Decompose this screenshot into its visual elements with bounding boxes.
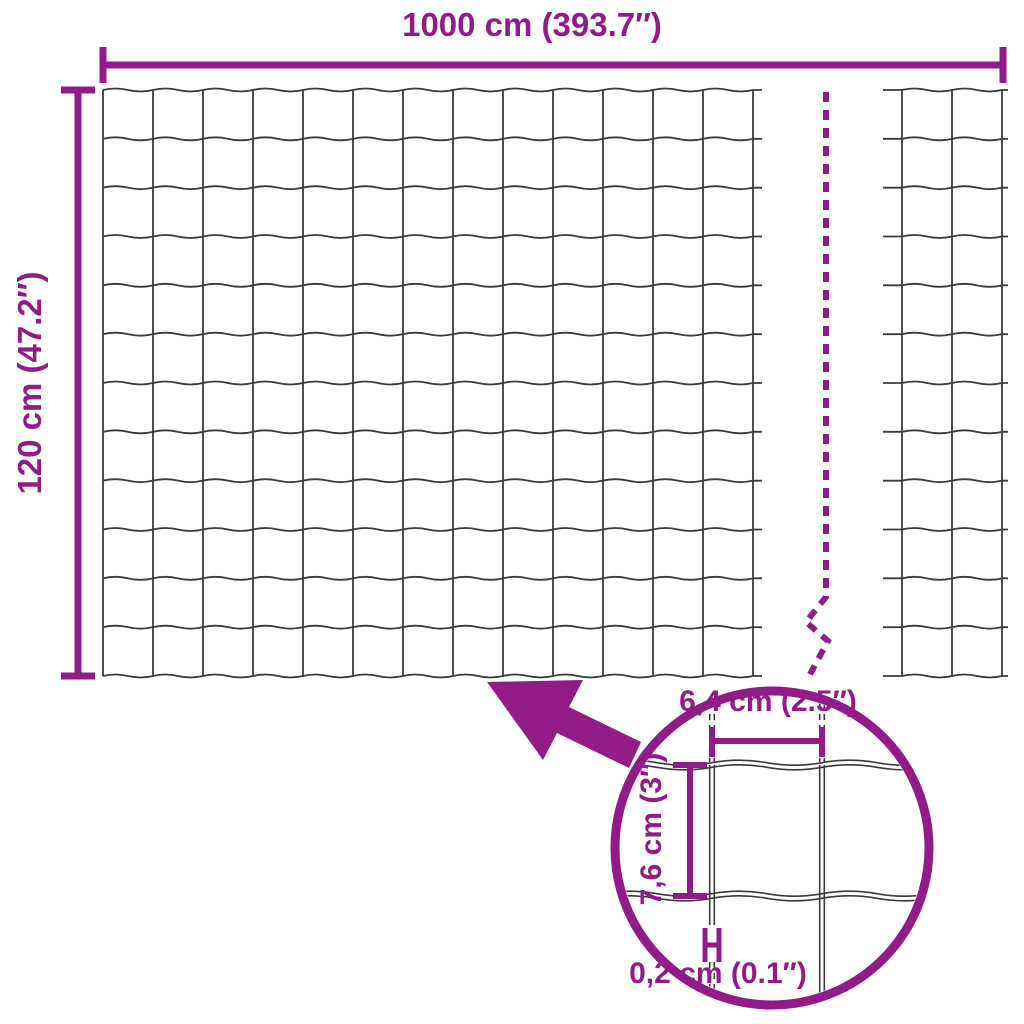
break-line — [806, 92, 828, 678]
zoom-arrow-icon — [487, 680, 641, 768]
mesh-height-label: 7,6 cm (3″) — [635, 753, 669, 906]
total-width-label: 1000 cm (393.7″) — [402, 6, 662, 44]
diagram-canvas — [0, 0, 1024, 1024]
total-height-label: 120 cm (47.2″) — [11, 271, 49, 494]
mesh-grid-main — [103, 89, 762, 678]
product-dimension-diagram: { "diagram_title": "wire mesh fence dime… — [0, 0, 1024, 1024]
mesh-grid-right — [883, 89, 1008, 678]
width-dimension-line — [103, 47, 1003, 83]
mesh-width-label: 6,4 cm (2.5″) — [679, 685, 857, 719]
wire-thickness-label: 0,2 cm (0.1″) — [629, 957, 807, 991]
height-dimension-line — [61, 90, 95, 676]
